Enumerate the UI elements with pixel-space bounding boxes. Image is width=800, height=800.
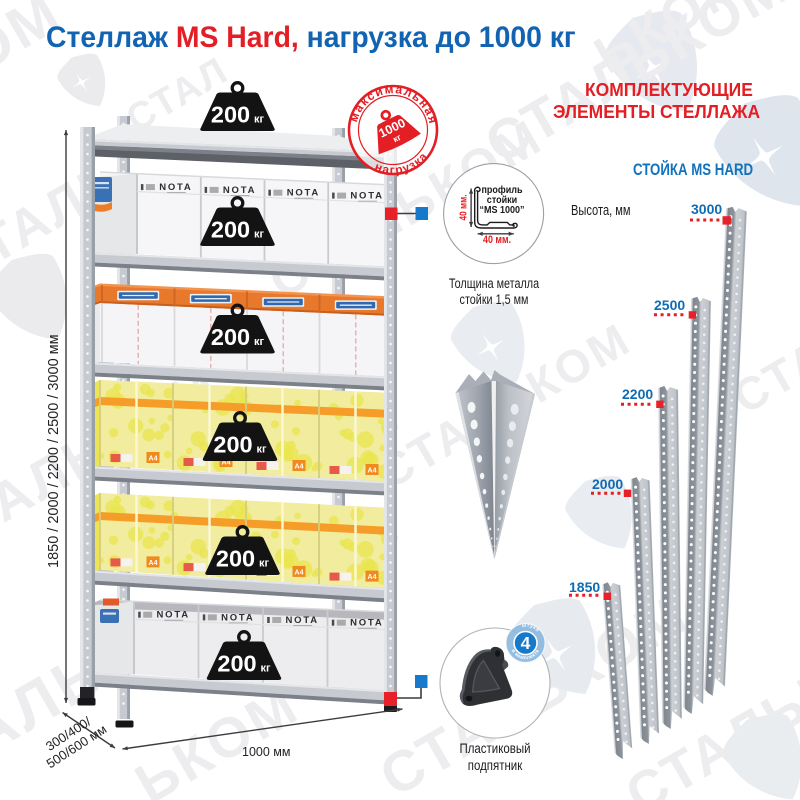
svg-text:кг: кг xyxy=(256,444,267,456)
svg-text:NOTA: NOTA xyxy=(156,610,189,621)
svg-text:NOTA: NOTA xyxy=(285,615,318,626)
svg-text:кг: кг xyxy=(254,229,265,241)
svg-text:A4: A4 xyxy=(368,468,377,475)
svg-text:кг: кг xyxy=(254,336,265,348)
svg-text:40 мм.: 40 мм. xyxy=(483,234,511,246)
svg-text:A4: A4 xyxy=(295,569,304,576)
svg-text:кг: кг xyxy=(259,558,270,570)
svg-text:200: 200 xyxy=(211,324,250,350)
svg-text:A4: A4 xyxy=(149,560,158,567)
svg-text:кг: кг xyxy=(254,114,265,126)
svg-text:NOTA: NOTA xyxy=(223,185,256,196)
svg-text:4: 4 xyxy=(521,633,531,653)
svg-text:NOTA: NOTA xyxy=(221,612,254,623)
svg-text:200: 200 xyxy=(213,432,252,458)
svg-text:NOTA: NOTA xyxy=(350,618,383,629)
svg-text:кг: кг xyxy=(260,663,271,675)
svg-text:200: 200 xyxy=(216,546,255,572)
svg-text:NOTA: NOTA xyxy=(350,191,383,202)
svg-text:A4: A4 xyxy=(295,464,304,471)
svg-text:200: 200 xyxy=(211,217,250,243)
svg-text:200: 200 xyxy=(217,651,256,677)
svg-text:A4: A4 xyxy=(368,574,377,581)
svg-text:A4: A4 xyxy=(149,456,158,463)
svg-text:NOTA: NOTA xyxy=(159,182,192,193)
svg-text:200: 200 xyxy=(211,102,250,128)
svg-text:NOTA: NOTA xyxy=(287,188,320,199)
